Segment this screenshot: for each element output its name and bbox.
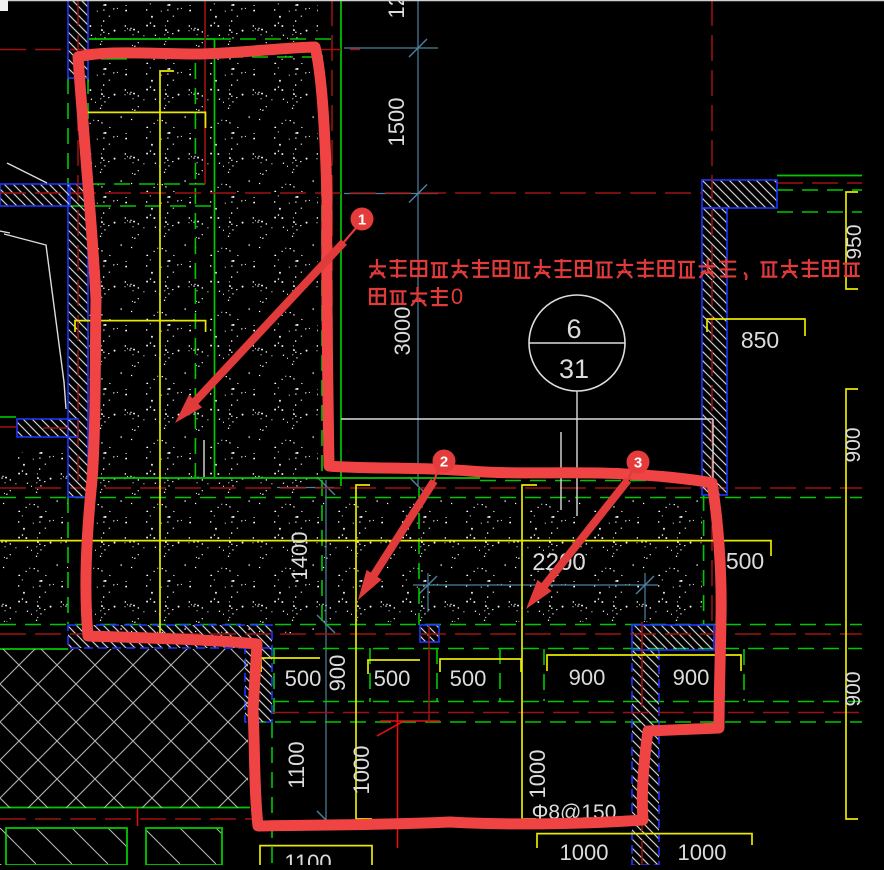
svg-text:3000: 3000 — [390, 307, 415, 356]
svg-text:850: 850 — [741, 327, 779, 353]
svg-text:1500: 1500 — [384, 98, 409, 147]
svg-text:900: 900 — [569, 665, 606, 690]
svg-text:1400: 1400 — [287, 532, 312, 581]
svg-text:1000: 1000 — [560, 840, 609, 865]
svg-text:1000: 1000 — [525, 750, 550, 799]
svg-text:500: 500 — [450, 666, 487, 691]
svg-text:1200: 1200 — [384, 0, 409, 18]
svg-text:500: 500 — [374, 666, 411, 691]
svg-text:900: 900 — [842, 671, 865, 706]
svg-text:1: 1 — [358, 212, 366, 229]
svg-text:1100: 1100 — [284, 741, 309, 788]
svg-text:500: 500 — [285, 666, 322, 691]
svg-text:1000: 1000 — [678, 840, 727, 865]
svg-text:1100: 1100 — [284, 850, 331, 865]
svg-text:900: 900 — [325, 655, 350, 692]
svg-text:500: 500 — [726, 548, 764, 574]
svg-text:6: 6 — [566, 314, 581, 344]
svg-text:2: 2 — [440, 454, 448, 471]
svg-text:0: 0 — [451, 284, 463, 309]
svg-text:900: 900 — [842, 427, 865, 462]
svg-text:31: 31 — [559, 354, 589, 384]
svg-text:3: 3 — [634, 455, 642, 472]
svg-text:1000: 1000 — [349, 746, 374, 795]
svg-text:900: 900 — [673, 665, 710, 690]
